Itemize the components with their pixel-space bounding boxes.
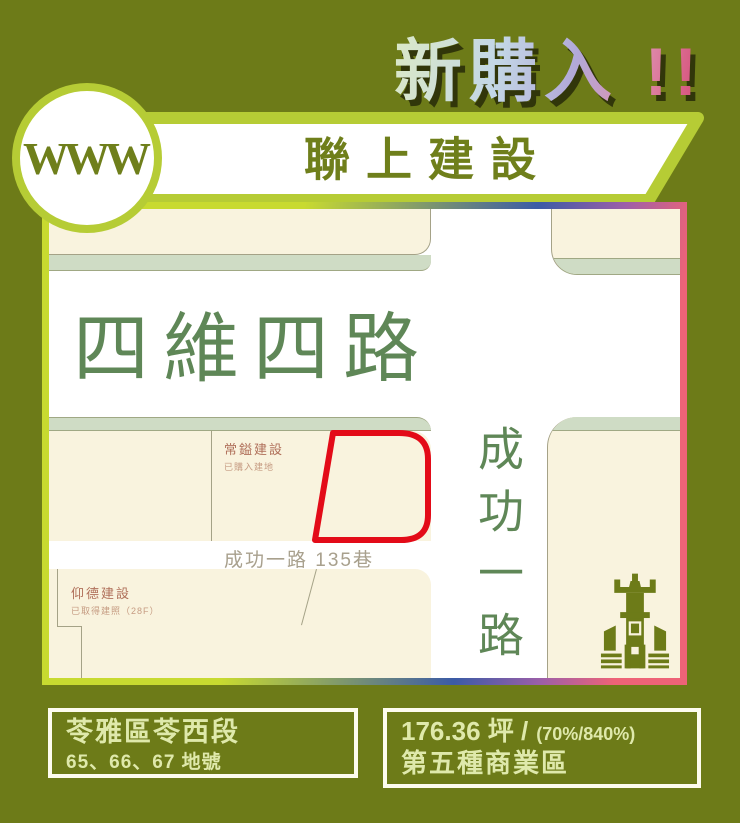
- location-info-box: 苓雅區苓西段 65、66、67 地號: [48, 708, 358, 778]
- road-edge-strip-top: [49, 255, 431, 271]
- map-frame: 四維四路 常鎰建設 已購入建地 成功一路 135巷 仰德建設 已取得建照（28F…: [42, 202, 687, 685]
- block-mid-left: [49, 431, 212, 541]
- road-edge-strip-top-right: [552, 258, 680, 274]
- location-lots: 65、66、67 地號: [66, 752, 340, 774]
- site-map: 四維四路 常鎰建設 已購入建地 成功一路 135巷 仰德建設 已取得建照（28F…: [49, 209, 680, 678]
- road-edge-strip-right-block: [548, 417, 680, 431]
- neighbor-name: 仰德建設: [71, 583, 431, 602]
- neighbor-status: 已取得建照（28F）: [71, 604, 431, 617]
- site-area: 176.36 坪 /: [401, 717, 528, 747]
- zoning-info-box: 176.36 坪 / (70%/840%) 第五種商業區: [383, 708, 701, 788]
- parcel-boundary-notch: [57, 626, 82, 678]
- location-title: 苓雅區苓西段: [66, 717, 340, 748]
- zoning-type: 第五種商業區: [401, 749, 683, 779]
- block-right: [547, 417, 680, 678]
- block-top-right: [551, 209, 680, 275]
- road-label-vertical: 成功一路: [465, 425, 531, 678]
- www-logo-text: WWW: [23, 132, 151, 185]
- company-name: 聯上建設: [228, 123, 628, 189]
- block-bottom-left: 仰德建設 已取得建照（28F）: [49, 569, 431, 678]
- road-label-horizontal: 四維四路: [73, 287, 433, 397]
- poster-page: 新購入 !! 聯上建設 WWW 四維四路 常鎰建設 已購入建地 成功一路 135…: [0, 0, 740, 823]
- neighbor-status: 已購入建地: [224, 460, 431, 473]
- building-icon: [598, 573, 672, 669]
- new-purchase-badge: 新購入 !!: [394, 16, 704, 115]
- road-edge-strip-bottom: [49, 417, 431, 431]
- coverage-ratio: (70%/840%): [536, 724, 635, 745]
- logo-circle: WWW: [12, 83, 162, 233]
- block-mid-center: 常鎰建設 已購入建地: [212, 431, 431, 541]
- neighbor-name: 常鎰建設: [224, 439, 431, 458]
- parcel-boundary-line: [57, 569, 58, 626]
- lane-label: 成功一路 135巷: [169, 545, 429, 572]
